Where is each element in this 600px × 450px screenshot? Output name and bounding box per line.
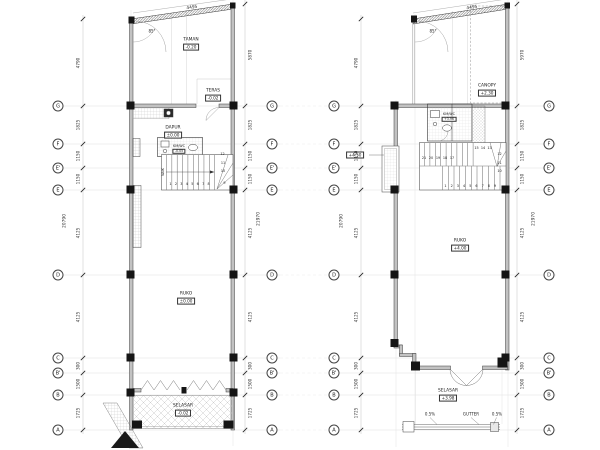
grid-bubble-F: F [544,139,555,150]
stair-number: 3 [180,182,182,186]
grid-bubble-Ep: E' [544,163,555,174]
stair-direction-note: NAIK [161,168,165,176]
stair-number: 12 [497,152,501,156]
level-badge: +4.00 [451,244,469,251]
stair-number: 5 [469,184,471,188]
dimension-label: 1500 [520,379,525,390]
grid-bubble-A: A [544,425,555,436]
stair-number: 20 [429,156,433,160]
grid-bubble-A: A [53,425,64,436]
dimension-label: 4125 [520,311,525,322]
level-badge: ±0.00 [164,131,182,138]
level-badge: +2.30 [478,89,496,96]
stair-number: 18 [443,156,447,160]
stair-number: 21 [422,156,426,160]
grid-bubble-C: C [544,353,555,364]
dimension-label: 4790 [76,57,81,68]
stair-number: 19 [436,156,440,160]
dimension-label: 1725 [248,407,253,418]
grid-bubble-G: G [544,101,555,112]
boundary-angle-upper: 85° [429,29,436,34]
dimension-label: 4125 [76,227,81,238]
level-badge: +3.98 [439,394,457,401]
stair-number: 2 [175,182,177,186]
stair-number: 1 [444,184,446,188]
stair-number: 11 [497,161,501,165]
dimension-label: 1500 [248,379,253,390]
stair-number: 10 [497,169,501,173]
total-dim-upper-left: 20790 [340,214,345,228]
grid-bubble-C: C [267,353,278,364]
stair-number: 8 [208,182,210,186]
stair-number: 7 [482,184,484,188]
dimension-label: 4790 [354,57,359,68]
grid-bubble-Ep: E' [329,163,340,174]
grid-bubble-E: E [544,185,555,196]
dimension-label: 1825 [76,120,81,131]
grid-bubble-A: A [329,425,340,436]
stair-number: 2 [451,184,453,188]
grid-bubble-F: F [329,139,340,150]
stair-number: 8 [488,184,490,188]
dimension-label: 1825 [248,120,253,131]
dimension-label: 1150 [248,151,253,162]
stair-number: 11 [221,161,225,165]
dimension-label: 1150 [76,174,81,185]
gutter-slope-left-label: 0.5% [425,412,435,417]
dimension-label: 1725 [520,407,525,418]
dimension-label: 300 [354,362,359,370]
stair-number: 17 [450,156,454,160]
stair-number: 9 [494,184,496,188]
top-dimension-upper: 4495 [466,5,478,12]
stair-number: 6 [475,184,477,188]
grid-bubble-B: B [53,390,64,401]
grid-bubble-Bp: B' [267,368,278,379]
gutter-label: GUTTER [463,412,479,417]
dimension-label: 1150 [520,151,525,162]
grid-bubble-B: B [267,390,278,401]
dimension-label: 300 [76,362,81,370]
dimension-label: 5870 [248,50,253,61]
stair-number: 7 [202,182,204,186]
dimension-label: 4125 [354,311,359,322]
top-dimension-lower: 4495 [186,5,198,12]
level-badge: -0.02 [175,409,191,416]
stair-number: 4 [186,182,188,186]
stair-number: 10 [221,169,225,173]
grid-bubble-Bp: B' [53,368,64,379]
grid-bubble-Ep: E' [267,163,278,174]
stair-number: 1 [169,182,171,186]
level-badge: +3.96 [442,116,457,122]
dimension-label: 1825 [354,120,359,131]
room-label-selasar-upper: SELASAR +3.98 [438,389,458,402]
stair-number: 5 [191,182,193,186]
total-dim-upper-right: 21970 [532,212,537,226]
grid-bubble-Bp: B' [329,368,340,379]
stair-number: 9 [223,181,225,185]
grid-bubble-C: C [329,353,340,364]
stair-number: 6 [197,182,199,186]
dimension-label: 4125 [76,311,81,322]
grid-bubble-D: D [267,270,278,281]
grid-bubble-B: B [544,390,555,401]
dimension-label: 4125 [354,227,359,238]
dimension-label: 5970 [520,50,525,61]
dimension-label: 1725 [76,407,81,418]
room-label-dapur: DAPUR ±0.00 [164,126,182,139]
dimension-label: 300 [248,362,253,370]
room-label-canopy: CANOPY +2.30 [478,84,496,97]
grid-bubble-D: D [544,270,555,281]
stair-number: 13 [487,146,491,150]
level-badge: ±0.00 [177,297,195,304]
dimension-label: 1150 [520,174,525,185]
grid-bubble-C: C [53,353,64,364]
grid-bubble-G: G [53,101,64,112]
plan-labels: TAMAN -0.20 TERAS -0.02 DAPUR ±0.00 KM/W… [0,0,600,450]
dimension-label: 4125 [520,227,525,238]
room-label-kmwc-upper: KM/WC +3.96 [442,112,457,122]
stair-number: 3 [457,184,459,188]
dimension-label: 1150 [354,151,359,162]
dimension-label: 1150 [248,174,253,185]
dimension-label: 4125 [248,227,253,238]
floor-plan-sheet: TAMAN -0.20 TERAS -0.02 DAPUR ±0.00 KM/W… [0,0,600,450]
total-dim-lower-right: 21970 [257,212,262,226]
stair-number: 4 [463,184,465,188]
room-label-kmwc-lower: KM/WC -0.05 [172,144,185,154]
stair-number: 15 [474,146,478,150]
grid-bubble-D: D [329,270,340,281]
dimension-label: 1150 [354,174,359,185]
room-label-ruko-lower: RUKO ±0.00 [177,292,195,305]
grid-bubble-E: E [267,185,278,196]
gutter-slope-right-label: 0.5% [492,412,502,417]
total-dim-lower-left: 20790 [63,214,68,228]
stair-number: 14 [481,146,485,150]
level-badge: -0.02 [205,94,221,101]
dimension-label: 4125 [248,311,253,322]
grid-bubble-Ep: E' [53,163,64,174]
dimension-label: 1150 [76,151,81,162]
level-badge: -0.20 [183,43,199,50]
stair-number: 12 [220,152,224,156]
grid-bubble-E: E [329,185,340,196]
grid-bubble-D: D [53,270,64,281]
grid-bubble-G: G [267,101,278,112]
boundary-angle-lower: 85° [148,29,155,34]
grid-bubble-F: F [53,139,64,150]
grid-bubble-Bp: B' [544,368,555,379]
grid-bubble-F: F [267,139,278,150]
room-label-teras: TERAS -0.02 [205,89,221,102]
grid-bubble-G: G [329,101,340,112]
dimension-label: 1500 [76,379,81,390]
dimension-label: 300 [520,362,525,370]
level-badge: -0.05 [172,148,185,154]
room-label-ruko-upper: RUKO +4.00 [451,239,469,252]
grid-bubble-A: A [267,425,278,436]
dimension-label: 1725 [354,407,359,418]
dimension-label: 1500 [354,379,359,390]
grid-bubble-E: E [53,185,64,196]
room-label-selasar-lower: SELASAR -0.02 [173,404,193,417]
dimension-label: 1825 [520,120,525,131]
room-label-taman: TAMAN -0.20 [183,38,199,51]
grid-bubble-B: B [329,390,340,401]
